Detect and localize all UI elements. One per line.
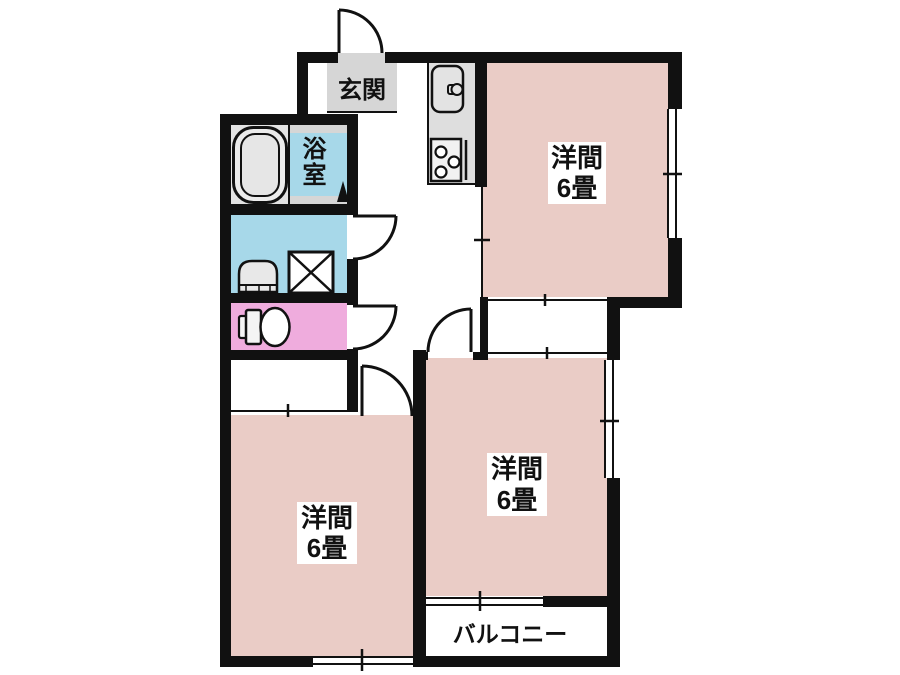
washing-machine-pan xyxy=(289,252,333,293)
bathtub xyxy=(234,128,287,203)
floor-plan: 玄関 浴室 洋間 6畳 洋間 6畳 洋間 6畳 バルコニー xyxy=(0,0,900,675)
washbasin xyxy=(239,261,277,292)
window-ticks xyxy=(288,174,682,671)
entrance-door-arc xyxy=(339,10,382,53)
room-size: 6畳 xyxy=(557,173,597,203)
room-size: 6畳 xyxy=(497,485,537,515)
room-name: 洋間 xyxy=(301,503,353,533)
balcony-label: バルコニー xyxy=(430,615,590,649)
room-label-top-right: 洋間 6畳 xyxy=(548,142,606,204)
symbols-overlay xyxy=(0,0,900,675)
gas-stove xyxy=(431,139,466,181)
room-size: 6畳 xyxy=(307,533,347,563)
entrance-label: 玄関 xyxy=(327,70,397,105)
room-bottom-door-arc xyxy=(362,366,412,416)
room-middle-door-arc xyxy=(428,309,471,352)
room-label-bottom-left: 洋間 6畳 xyxy=(297,502,357,564)
bathroom-label: 浴室 xyxy=(299,136,323,188)
toilet-door-arc xyxy=(353,306,396,349)
toilet xyxy=(239,308,290,346)
room-label-middle-right: 洋間 6畳 xyxy=(487,453,547,516)
bath-door-marker xyxy=(337,181,349,202)
kitchen-sink xyxy=(432,66,463,112)
room-name: 洋間 xyxy=(551,143,603,173)
room-name: 洋間 xyxy=(491,454,543,484)
washroom-door-arc xyxy=(353,216,396,259)
